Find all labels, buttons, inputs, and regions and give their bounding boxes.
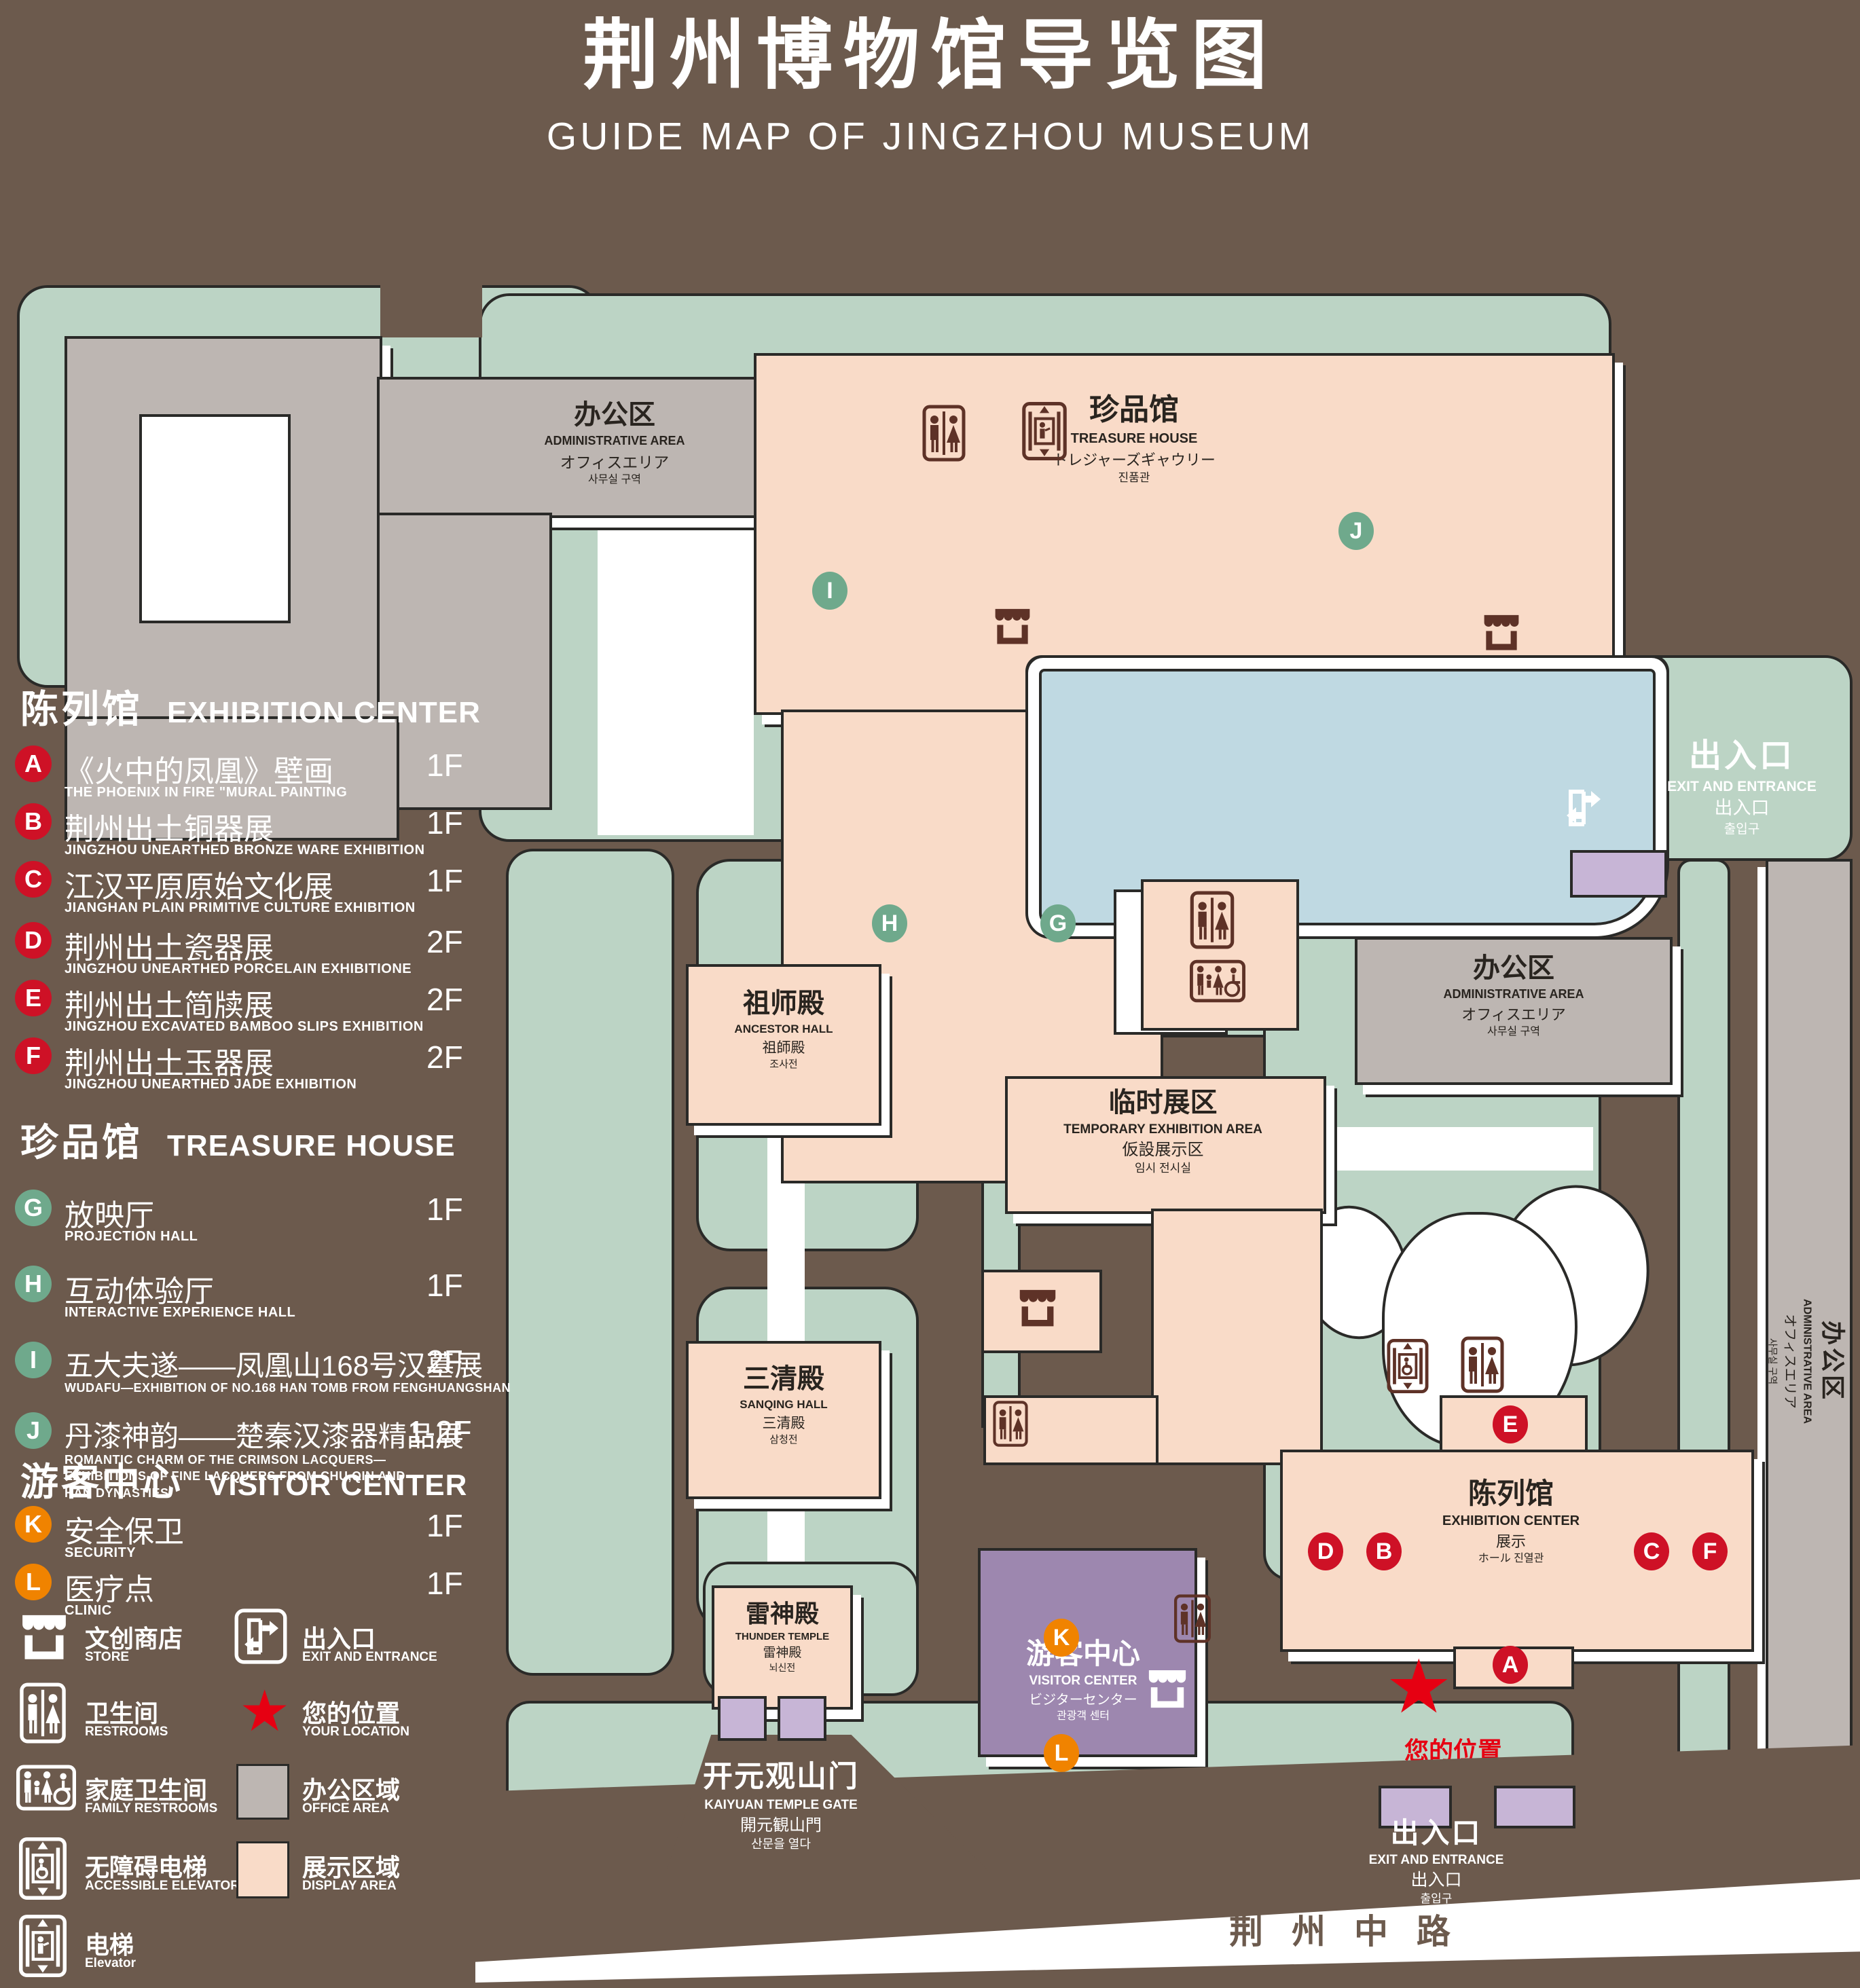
legend-item-I: I 五大夫遂——凤凰山168号汉墓展 WUDAFU—EXHIBITION OF … — [0, 1342, 503, 1403]
legend-accessible-en: ACCESSIBLE ELEVATOR — [85, 1879, 240, 1894]
page-title-zh: 荆州博物馆导览图 — [251, 5, 1609, 106]
legend-location-en: YOUR LOCATION — [302, 1725, 409, 1739]
legend-item-I-en: WUDAFU—EXHIBITION OF NO.168 HAN TOMB FRO… — [65, 1381, 511, 1395]
page-title: 荆州博物馆导览图 GUIDE MAP OF JINGZHOU MUSEUM — [251, 5, 1609, 162]
legend-item-C-en: JIANGHAN PLAIN PRIMITIVE CULTURE EXHIBIT… — [65, 900, 416, 916]
map-marker-J: J — [1338, 512, 1374, 550]
store-icon — [1146, 1665, 1188, 1718]
admin-strip-label: 办公区 ADMINISTRATIVE AREA オフィスエリア 사무실 구역 — [1766, 1299, 1850, 1424]
gate-label-ja: 開元観山門 — [638, 1815, 924, 1837]
legend-item-K: K 安全保卫 SECURITY 1F — [0, 1506, 503, 1567]
restroom-icon — [922, 405, 966, 465]
legend-item-A-zh: 《火中的凤凰》壁画 — [65, 747, 333, 790]
exhibition-center-label: 陈列馆 EXHIBITION CENTER 展示 ホール 진열관 — [1392, 1475, 1630, 1566]
map-marker-C: C — [1634, 1532, 1669, 1570]
map-marker-K: K — [1044, 1619, 1079, 1657]
legend-item-F-floor: 2F — [426, 1039, 463, 1075]
temporary-exhibition-label: 临时展区 TEMPORARY EXHIBITION AREA 仮設展示区 임시 … — [1008, 1085, 1317, 1176]
elevator-icon — [19, 1915, 67, 1981]
temp-label-zh: 临时展区 — [1008, 1085, 1317, 1121]
admin-strip-label-en: ADMINISTRATIVE AREA — [1799, 1299, 1815, 1424]
map-marker-D: D — [1308, 1532, 1343, 1570]
legend-item-H-zh: 互动体验厅 — [65, 1267, 214, 1310]
gate-block — [718, 1696, 767, 1741]
legend-item-J-zh: 丹漆神韵——楚秦汉漆器精品展 — [65, 1414, 464, 1455]
legend-item-A: A 《火中的凤凰》壁画 THE PHOENIX IN FIRE "MURAL P… — [0, 745, 503, 807]
ancestor-label-ja: 祖師殿 — [689, 1039, 879, 1058]
legend-store-en: STORE — [85, 1650, 129, 1665]
legend-office-en: OFFICE AREA — [302, 1801, 389, 1816]
legend-badge-F: F — [15, 1037, 52, 1074]
admin-east-label: 办公区 ADMINISTRATIVE AREA オフィスエリア 사무실 구역 — [1357, 951, 1670, 1039]
legend-item-E-floor: 2F — [426, 981, 463, 1018]
thunder-temple-label: 雷神殿 THUNDER TEMPLE 雷神殿 뇌신전 — [714, 1598, 850, 1674]
legend-section-exhibition-zh: 陈列馆 — [20, 679, 143, 734]
accessible-elevator-icon — [19, 1837, 67, 1903]
exhibition-label-en: EXHIBITION CENTER — [1392, 1512, 1630, 1530]
legend-item-B-floor: 1F — [426, 805, 463, 841]
legend-item-G-floor: 1F — [426, 1191, 463, 1228]
legend-section-exhibition-header: 陈列馆 EXHIBITION CENTER — [20, 679, 481, 734]
legend-item-K-en: SECURITY — [65, 1545, 136, 1561]
sanqing-hall-label: 三清殿 SANQING HALL 三清殿 삼청전 — [689, 1361, 879, 1447]
location-star-icon: ★ — [239, 1682, 290, 1739]
admin-east-label-en: ADMINISTRATIVE AREA — [1357, 987, 1670, 1003]
exhibition-label-ko: ホール 진열관 — [1392, 1551, 1630, 1566]
exit-top-en: EXIT AND ENTRANCE — [1626, 777, 1857, 796]
map-marker-A: A — [1493, 1646, 1528, 1684]
legend-item-G: G 放映厅 PROJECTION HALL 1F — [0, 1190, 503, 1251]
temp-label-en: TEMPORARY EXHIBITION AREA — [1008, 1121, 1317, 1138]
gate-label-zh: 开元观山门 — [638, 1757, 924, 1797]
legend-item-H: H 互动体验厅 INTERACTIVE EXPERIENCE HALL 1F — [0, 1266, 503, 1327]
store-icon — [993, 603, 1032, 655]
legend-badge-J: J — [15, 1412, 52, 1449]
store-icon — [1482, 609, 1521, 661]
kaiyuan-gate-label: 开元观山门 KAIYUAN TEMPLE GATE 開元観山門 산문을 열다 — [638, 1757, 924, 1853]
exit-top-ja: 出入口 — [1626, 796, 1857, 821]
your-location-star-icon: ★ — [1385, 1650, 1453, 1725]
road-name: 荆 州 中 路 — [1168, 1909, 1521, 1954]
zone-west-column — [506, 849, 674, 1676]
page-title-en: GUIDE MAP OF JINGZHOU MUSEUM — [251, 111, 1609, 162]
family-restroom-icon — [1190, 959, 1245, 1007]
thunder-label-en: THUNDER TEMPLE — [714, 1630, 850, 1644]
legend-item-I-zh: 五大夫遂——凤凰山168号汉墓展 — [65, 1343, 483, 1384]
exit-top-zh: 出入口 — [1626, 735, 1857, 777]
store-icon — [19, 1610, 69, 1670]
legend-badge-B: B — [15, 803, 52, 840]
legend-item-H-floor: 1F — [426, 1267, 463, 1304]
legend-item-G-zh: 放映厅 — [65, 1191, 154, 1234]
ancestor-label-zh: 祖师殿 — [689, 986, 879, 1022]
legend-restrooms-en: RESTROOMS — [85, 1725, 168, 1739]
legend-item-I-floor: 2F — [426, 1343, 463, 1380]
legend-item-E-en: JINGZHOU EXCAVATED BAMBOO SLIPS EXHIBITI… — [65, 1019, 424, 1035]
exit-top-label: 出入口 EXIT AND ENTRANCE 出入口 출입구 — [1626, 735, 1857, 838]
guide-map-page: { "title": {"zh": "荆州博物馆导览图", "en": "GUI… — [0, 0, 1860, 1988]
exit-icon — [234, 1608, 287, 1668]
map-marker-B: B — [1366, 1532, 1402, 1570]
legend-badge-D: D — [15, 922, 52, 959]
legend-item-E-zh: 荆州出土简牍展 — [65, 981, 274, 1025]
legend-item-A-floor: 1F — [426, 747, 463, 784]
temp-label-ja: 仮設展示区 — [1008, 1139, 1317, 1161]
legend-item-K-floor: 1F — [426, 1507, 463, 1544]
restroom-icon — [1190, 891, 1235, 953]
legend-badge-K: K — [15, 1506, 52, 1543]
exhibition-label-ja: 展示 — [1392, 1532, 1630, 1551]
sanqing-label-en: SANQING HALL — [689, 1397, 879, 1412]
legend-item-B: B 荆州出土铜器展 JINGZHOU UNEARTHED BRONZE WARE… — [0, 803, 503, 864]
map-marker-I: I — [812, 572, 847, 610]
exit-bottom-zh: 出入口 — [1324, 1814, 1548, 1852]
legend-item-B-en: JINGZHOU UNEARTHED BRONZE WARE EXHIBITIO… — [65, 843, 425, 858]
legend-item-C-floor: 1F — [426, 862, 463, 899]
restroom-icon — [1459, 1336, 1506, 1397]
admin-strip-label-zh: 办公区 — [1815, 1299, 1850, 1424]
ancestor-label-ko: 조사전 — [689, 1058, 879, 1071]
legend-badge-E: E — [15, 980, 52, 1016]
exit-top-ko: 출입구 — [1626, 821, 1857, 838]
admin-strip-label-ja: オフィスエリア — [1779, 1299, 1799, 1424]
admin-east-label-zh: 办公区 — [1357, 951, 1670, 987]
road-name-text: 荆 州 中 路 — [1168, 1909, 1521, 1954]
exit-bottom-label: 出入口 EXIT AND ENTRANCE 出入口 출입구 — [1324, 1814, 1548, 1907]
legend-badge-A: A — [15, 745, 52, 782]
gate-label-ko: 산문을 열다 — [638, 1837, 924, 1853]
restroom-icon — [993, 1400, 1028, 1451]
display-area-swatch — [236, 1841, 289, 1898]
admin-nw-courtyard — [139, 414, 291, 623]
zone-step-patch — [380, 280, 482, 337]
ancestor-hall-label: 祖师殿 ANCESTOR HALL 祖師殿 조사전 — [689, 986, 879, 1071]
sanqing-label-zh: 三清殿 — [689, 1361, 879, 1397]
legend-item-K-zh: 安全保卫 — [65, 1507, 184, 1551]
legend-section-exhibition-en: EXHIBITION CENTER — [167, 696, 481, 730]
thunder-label-ja: 雷神殿 — [714, 1644, 850, 1661]
legend-item-D-zh: 荆州出土瓷器展 — [65, 923, 274, 967]
legend-item-D-en: JINGZHOU UNEARTHED PORCELAIN EXHIBITIONE — [65, 961, 412, 977]
map-marker-G: G — [1040, 904, 1076, 942]
legend-item-B-zh: 荆州出土铜器展 — [65, 805, 274, 848]
legend-family-en: FAMILY RESTROOMS — [85, 1801, 217, 1816]
legend-badge-I: I — [15, 1342, 52, 1378]
legend-section-visitor-header: 游客中心 VISITOR CENTER — [20, 1452, 467, 1507]
legend-badge-G: G — [15, 1190, 52, 1226]
legend-section-treasure-en: TREASURE HOUSE — [167, 1129, 456, 1163]
legend-badge-L: L — [15, 1564, 52, 1600]
legend-item-C: C 江汉平原原始文化展 JIANGHAN PLAIN PRIMITIVE CUL… — [0, 861, 503, 922]
legend-item-L-zh: 医疗点 — [65, 1565, 154, 1608]
sanqing-label-ko: 삼청전 — [689, 1433, 879, 1447]
map-marker-F: F — [1692, 1532, 1728, 1570]
legend-elevator-en: Elevator — [85, 1956, 136, 1971]
admin-strip-label-ko: 사무실 구역 — [1766, 1299, 1779, 1424]
ancestor-label-en: ANCESTOR HALL — [689, 1022, 879, 1037]
sanqing-hall: 三清殿 SANQING HALL 三清殿 삼청전 — [686, 1341, 881, 1499]
legend-section-treasure-zh: 珍品馆 — [20, 1112, 143, 1167]
legend-item-D: D 荆州出土瓷器展 JINGZHOU UNEARTHED PORCELAIN E… — [0, 922, 503, 983]
legend-item-G-en: PROJECTION HALL — [65, 1229, 198, 1245]
store-icon — [1017, 1285, 1058, 1337]
exit-bottom-ko: 출입구 — [1324, 1892, 1548, 1907]
legend-item-F: F 荆州出土玉器展 JINGZHOU UNEARTHED JADE EXHIBI… — [0, 1037, 503, 1099]
gate-label-en: KAIYUAN TEMPLE GATE — [638, 1797, 924, 1814]
restroom-icon — [1173, 1594, 1211, 1646]
legend-section-treasure-header: 珍品馆 TREASURE HOUSE — [20, 1112, 456, 1167]
restroom-icon — [19, 1682, 67, 1747]
admin-east-label-ko: 사무실 구역 — [1357, 1025, 1670, 1039]
office-area-swatch — [236, 1764, 289, 1820]
legend-item-J-floor: 1-2F — [407, 1414, 472, 1450]
thunder-temple: 雷神殿 THUNDER TEMPLE 雷神殿 뇌신전 — [712, 1585, 853, 1710]
ancestor-hall: 祖师殿 ANCESTOR HALL 祖師殿 조사전 — [686, 964, 881, 1126]
legend-exit-en: EXIT AND ENTRANCE — [302, 1650, 437, 1665]
exit-bottom-en: EXIT AND ENTRANCE — [1324, 1852, 1548, 1869]
admin-east: 办公区 ADMINISTRATIVE AREA オフィスエリア 사무실 구역 — [1355, 937, 1673, 1085]
temp-label-ko: 임시 전시실 — [1008, 1161, 1317, 1176]
legend-item-F-en: JINGZHOU UNEARTHED JADE EXHIBITION — [65, 1077, 357, 1092]
gate-block — [1570, 850, 1667, 898]
legend-badge-H: H — [15, 1266, 52, 1302]
legend-item-C-zh: 江汉平原原始文化展 — [65, 862, 333, 906]
legend-item-H-en: INTERACTIVE EXPERIENCE HALL — [65, 1305, 295, 1321]
legend-badge-C: C — [15, 861, 52, 898]
legend-display-en: DISPLAY AREA — [302, 1879, 397, 1894]
exit-bottom-ja: 出入口 — [1324, 1869, 1548, 1892]
legend-item-D-floor: 2F — [426, 923, 463, 960]
treasure-label-ko: 진품관 — [1005, 471, 1263, 485]
exhibition-label-zh: 陈列馆 — [1392, 1475, 1630, 1512]
admin-east-label-ja: オフィスエリア — [1357, 1005, 1670, 1025]
thunder-label-zh: 雷神殿 — [714, 1598, 850, 1630]
legend-item-L-floor: 1F — [426, 1565, 463, 1602]
accessible-elevator-icon — [1387, 1339, 1429, 1397]
legend-item-L-en: CLINIC — [65, 1603, 112, 1619]
legend-section-visitor-en: VISITOR CENTER — [208, 1469, 467, 1503]
thunder-label-ko: 뇌신전 — [714, 1661, 850, 1674]
elevator-icon — [1022, 402, 1067, 464]
legend-section-visitor-zh: 游客中心 — [20, 1452, 183, 1507]
temporary-exhibition-column — [1151, 1209, 1323, 1465]
family-restroom-icon — [16, 1764, 76, 1815]
map-marker-E: E — [1493, 1405, 1528, 1443]
gate-block — [778, 1696, 826, 1741]
map-marker-H: H — [872, 904, 907, 942]
legend-item-F-zh: 荆州出土玉器展 — [65, 1039, 274, 1082]
legend-item-A-en: THE PHOENIX IN FIRE "MURAL PAINTING — [65, 785, 347, 800]
legend-item-E: E 荆州出土简牍展 JINGZHOU EXCAVATED BAMBOO SLIP… — [0, 980, 503, 1041]
sanqing-label-ja: 三清殿 — [689, 1414, 879, 1433]
exit-icon — [1558, 782, 1607, 837]
